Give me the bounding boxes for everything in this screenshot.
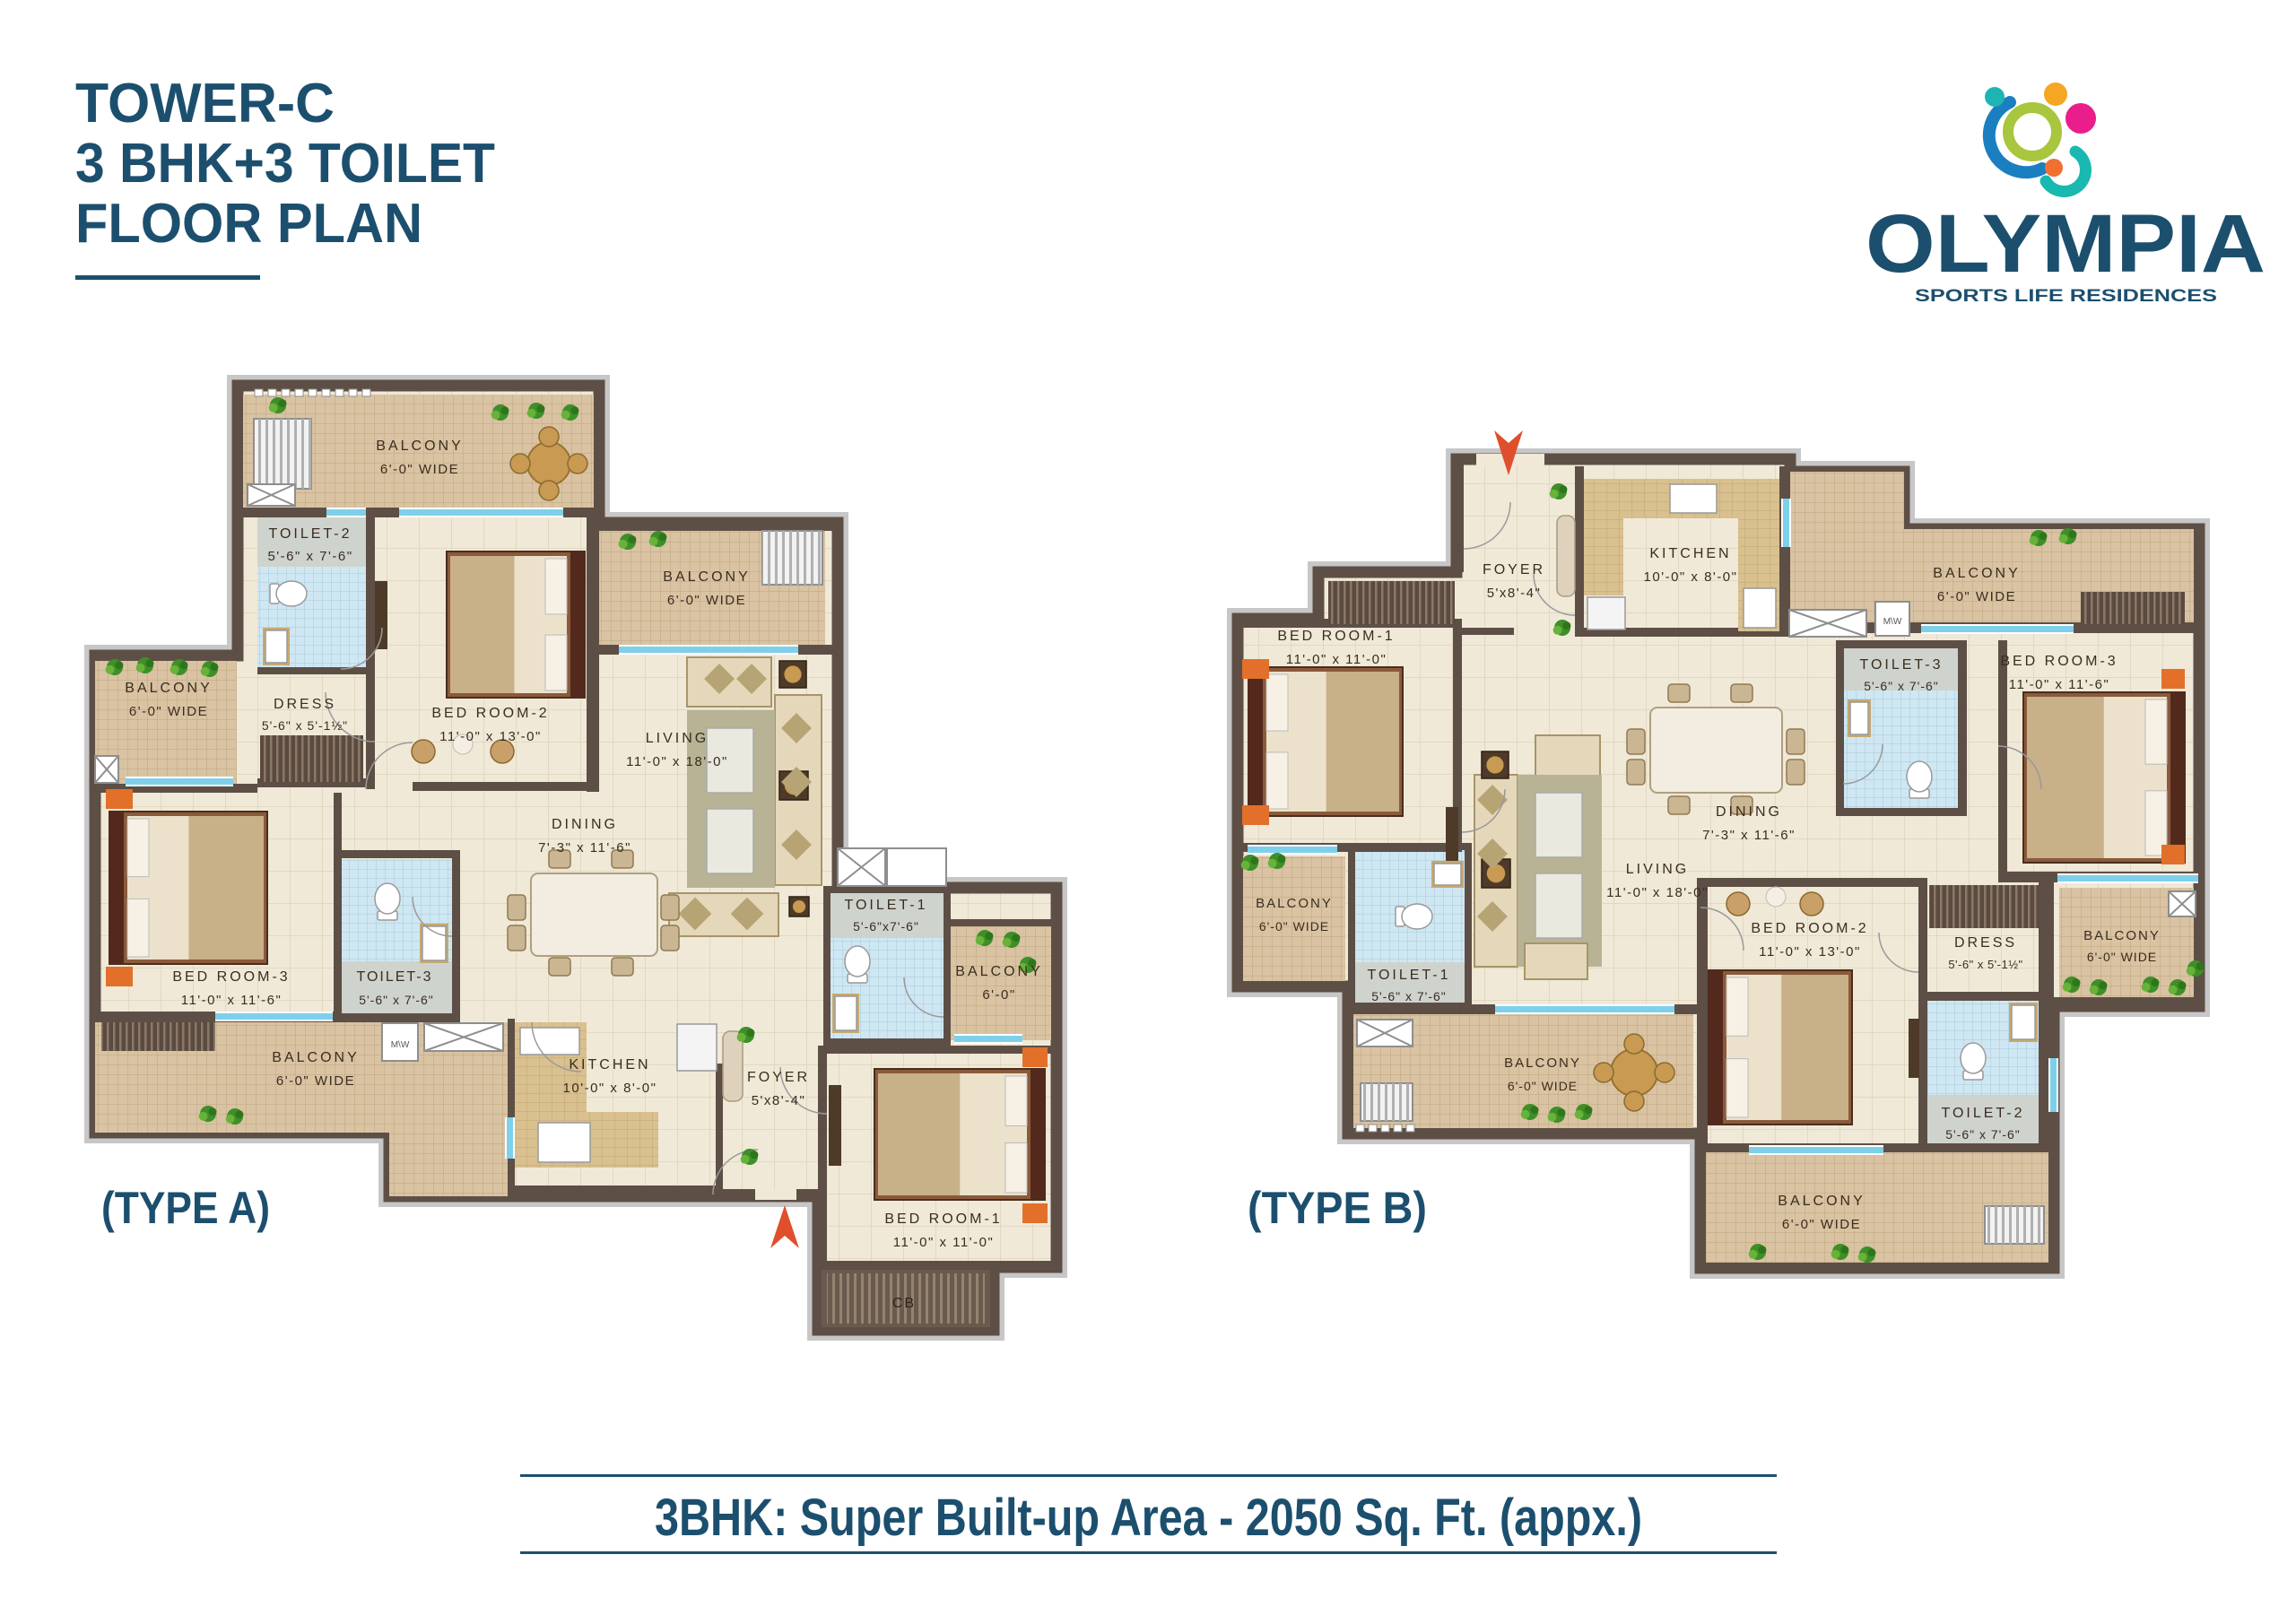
svg-text:5'-6" x 7'-6": 5'-6" x 7'-6" (359, 993, 434, 1007)
svg-text:M\W: M\W (391, 1040, 410, 1050)
svg-text:DINING: DINING (1716, 804, 1782, 820)
svg-text:TOILET-2: TOILET-2 (1941, 1106, 2024, 1121)
svg-text:BALCONY: BALCONY (125, 681, 212, 696)
svg-text:6'-0": 6'-0" (982, 987, 1015, 1003)
svg-text:FOYER: FOYER (747, 1070, 810, 1085)
svg-text:BED ROOM-3: BED ROOM-3 (172, 969, 290, 985)
svg-text:5'-6" x 7'-6": 5'-6" x 7'-6" (1371, 989, 1447, 1003)
svg-text:BALCONY: BALCONY (1256, 896, 1333, 911)
svg-text:11'-0" x 13'-0": 11'-0" x 13'-0" (1759, 944, 1861, 960)
svg-text:M\W: M\W (1883, 617, 1902, 627)
svg-text:(TYPE B): (TYPE B) (1248, 1183, 1427, 1233)
svg-text:11'-0" x 11'-0": 11'-0" x 11'-0" (893, 1235, 995, 1250)
svg-text:TOILET-1: TOILET-1 (1367, 968, 1450, 983)
svg-text:BED ROOM-1: BED ROOM-1 (884, 1211, 1002, 1227)
svg-text:3 BHK+3 TOILET: 3 BHK+3 TOILET (75, 133, 495, 195)
svg-text:KITCHEN: KITCHEN (569, 1057, 650, 1073)
svg-text:6'-0" WIDE: 6'-0" WIDE (1937, 589, 2016, 604)
svg-text:BALCONY: BALCONY (2083, 928, 2161, 943)
svg-text:5'-6" x 7'-6": 5'-6" x 7'-6" (1945, 1127, 2021, 1142)
svg-text:CB: CB (892, 1296, 916, 1311)
svg-text:11'-0" x 11'-6": 11'-0" x 11'-6" (2009, 677, 2110, 692)
svg-text:11'-0" x 18'-0": 11'-0" x 18'-0" (626, 754, 728, 769)
svg-text:FLOOR PLAN: FLOOR PLAN (75, 193, 422, 255)
svg-text:KITCHEN: KITCHEN (1649, 546, 1731, 561)
svg-text:BED ROOM-2: BED ROOM-2 (1751, 921, 1868, 936)
svg-text:OLYMPIA: OLYMPIA (1865, 198, 2266, 290)
svg-text:11'-0" x 18'-0": 11'-0" x 18'-0" (1606, 885, 1709, 900)
svg-text:SPORTS LIFE RESIDENCES: SPORTS LIFE RESIDENCES (1915, 287, 2217, 306)
svg-text:6'-0" WIDE: 6'-0" WIDE (380, 462, 459, 477)
svg-text:5'-6" x 5'-1½": 5'-6" x 5'-1½" (262, 718, 348, 733)
svg-text:DRESS: DRESS (274, 697, 336, 712)
svg-text:DINING: DINING (552, 817, 618, 832)
svg-text:10'-0" x 8'-0": 10'-0" x 8'-0" (1644, 569, 1738, 585)
svg-text:6'-0" WIDE: 6'-0" WIDE (1782, 1217, 1861, 1232)
svg-text:TOILET-2: TOILET-2 (268, 526, 352, 542)
svg-text:5'x8'-4": 5'x8'-4" (1487, 586, 1542, 601)
svg-text:DRESS: DRESS (1954, 935, 2017, 951)
svg-text:6'-0" WIDE: 6'-0" WIDE (667, 593, 746, 608)
svg-text:11'-0" x 13'-0": 11'-0" x 13'-0" (439, 729, 542, 744)
svg-text:7'-3" x 11'-6": 7'-3" x 11'-6" (1702, 828, 1796, 843)
svg-text:6'-0" WIDE: 6'-0" WIDE (2087, 950, 2157, 964)
svg-text:BALCONY: BALCONY (1933, 566, 2020, 581)
svg-text:BALCONY: BALCONY (376, 439, 463, 454)
svg-text:6'-0" WIDE: 6'-0" WIDE (129, 704, 208, 719)
svg-text:6'-0" WIDE: 6'-0" WIDE (1259, 919, 1329, 934)
svg-text:TOILET-1: TOILET-1 (844, 898, 927, 913)
svg-text:LIVING: LIVING (1626, 862, 1689, 877)
svg-text:TOWER-C: TOWER-C (75, 73, 335, 135)
svg-text:5'-6" x 5'-1½": 5'-6" x 5'-1½" (1948, 958, 2022, 971)
svg-text:LIVING: LIVING (646, 731, 709, 746)
svg-text:6'-0" WIDE: 6'-0" WIDE (1508, 1079, 1578, 1093)
svg-text:5'x8'-4": 5'x8'-4" (752, 1093, 806, 1108)
svg-text:BED ROOM-3: BED ROOM-3 (2000, 654, 2118, 669)
svg-text:3BHK: Super Built-up Area - 20: 3BHK: Super Built-up Area - 2050 Sq. Ft.… (655, 1489, 1642, 1547)
svg-text:(TYPE A): (TYPE A) (101, 1183, 270, 1233)
svg-text:BED ROOM-2: BED ROOM-2 (431, 706, 549, 721)
svg-text:5'-6"x7'-6": 5'-6"x7'-6" (853, 919, 919, 934)
svg-text:6'-0" WIDE: 6'-0" WIDE (276, 1073, 355, 1089)
svg-text:BALCONY: BALCONY (663, 569, 750, 585)
svg-text:BALCONY: BALCONY (272, 1050, 359, 1065)
svg-text:5'-6" x 7'-6": 5'-6" x 7'-6" (1864, 679, 1939, 693)
svg-text:BALCONY: BALCONY (955, 964, 1042, 979)
svg-text:BALCONY: BALCONY (1778, 1194, 1865, 1209)
svg-text:5'-6" x 7'-6": 5'-6" x 7'-6" (267, 549, 352, 564)
svg-text:10'-0" x 8'-0": 10'-0" x 8'-0" (563, 1081, 657, 1096)
svg-text:BED ROOM-1: BED ROOM-1 (1277, 629, 1395, 644)
svg-text:FOYER: FOYER (1483, 562, 1545, 578)
svg-text:11'-0" x 11'-0": 11'-0" x 11'-0" (1286, 652, 1387, 667)
svg-text:BALCONY: BALCONY (1504, 1055, 1581, 1071)
svg-text:11'-0" x 11'-6": 11'-0" x 11'-6" (181, 993, 283, 1008)
svg-text:7'-3" x 11'-6": 7'-3" x 11'-6" (538, 840, 631, 855)
svg-text:TOILET-3: TOILET-3 (356, 969, 432, 985)
svg-text:TOILET-3: TOILET-3 (1859, 657, 1943, 673)
